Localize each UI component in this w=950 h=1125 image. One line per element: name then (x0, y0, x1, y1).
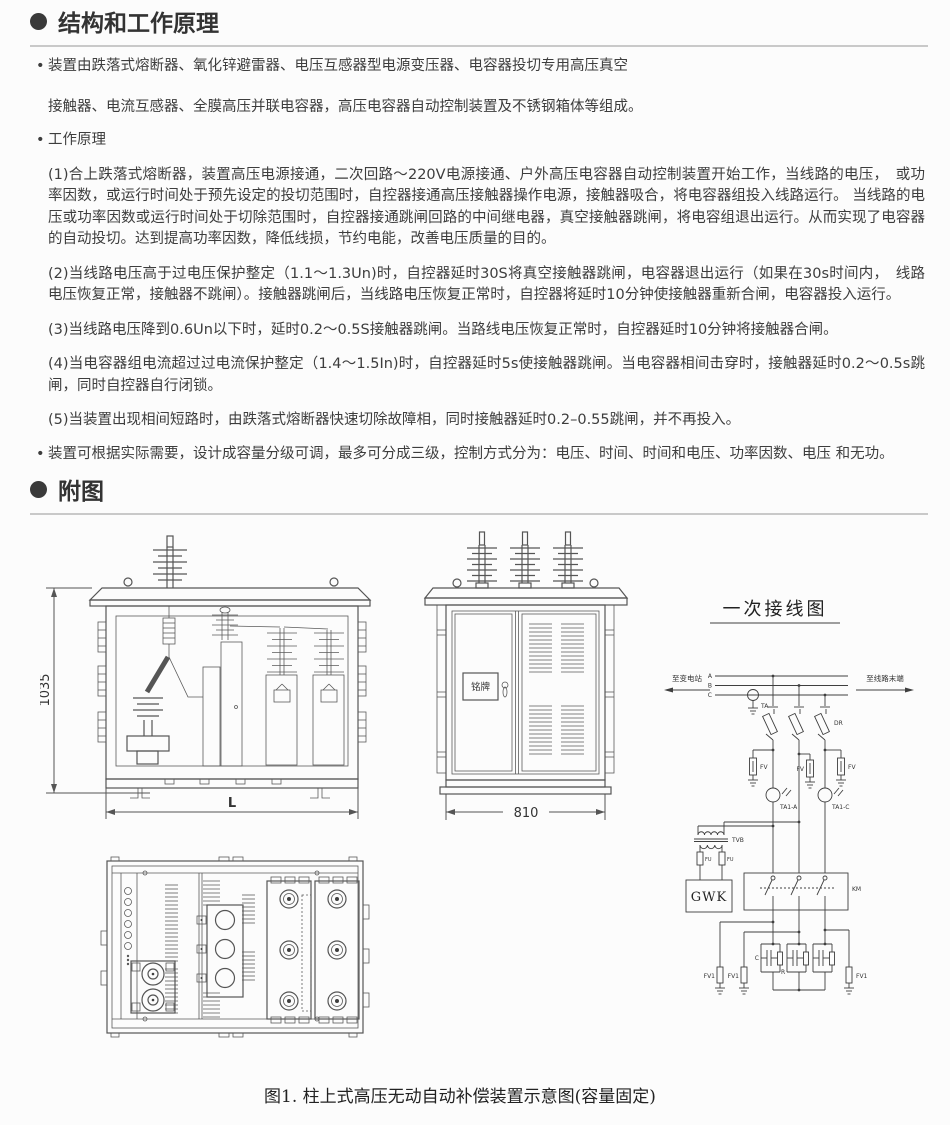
km-label: KM (852, 886, 861, 893)
figure-schematic: 一次接线图 A B C 至变电站 至线路末端 TA (640, 592, 950, 1010)
tvb-label: TVB (731, 837, 744, 844)
gwk-controller: GWK (686, 880, 732, 912)
section-title: 附图 (58, 472, 104, 506)
gwk-label: GWK (691, 890, 727, 905)
bullet-item-components: 装置由跌落式熔断器、氧化锌避雷器、电压互感器型电源变压器、电容器投切专用高压真空… (36, 46, 925, 128)
dim-height-label: 1035 (40, 673, 53, 706)
capacitor-unit (313, 630, 344, 765)
bullet-item-capacity: 装置可根据实际需要，设计成容量分级可调，最多可分成三级，控制方式分为：电压、时间… (36, 444, 925, 466)
paragraph-3: (3)当线路电压降到0.6Un以下时，延时0.2～0.5S接触器跳闸。当路线电压… (36, 320, 925, 342)
fu-label: FU (705, 857, 712, 863)
figure-front-view: 1035 (40, 530, 380, 822)
dropout-fuse-arm (147, 657, 168, 692)
lifting-lug-icon (453, 579, 461, 587)
figure-caption: 图1. 柱上式高压无动自动补偿装置示意图(容量固定) (0, 1082, 920, 1107)
paragraph-2: (2)当线路电压高于过电压保护整定（1.1～1.3Un)时，自控器延时30S将真… (36, 264, 925, 307)
bus-lines: A B C (708, 673, 848, 699)
fv-label: FV (796, 766, 804, 773)
fv1-label: FV1 (728, 973, 740, 980)
dim-width-label: L (228, 796, 236, 811)
lifting-lug-icon (124, 578, 132, 586)
figure-side-view: 铭牌 (400, 530, 660, 822)
page-root: 结构和工作原理 装置由跌落式熔断器、氧化锌避雷器、电压互感器型电源变压器、电容器… (0, 0, 950, 1125)
section-header-figures: 附图 (30, 472, 928, 515)
tvb-transformer: TVB FU FU (694, 821, 800, 880)
fv-arresters: FV FV FV (748, 749, 856, 788)
fuse-icon (163, 606, 175, 657)
lifting-lug-icon (330, 578, 338, 586)
fv1-label: FV1 (704, 973, 716, 980)
components-line2: 接触器、电流互感器、全膜高压并联电容器，高压电容器自动控制装置及不锈钢箱体等组成… (48, 87, 925, 128)
bullet-item-working-principle: 工作原理 (36, 130, 925, 152)
right-door (522, 614, 596, 771)
phase-b-label: B (708, 683, 712, 690)
internal-wire (284, 627, 328, 629)
figure-top-view (95, 853, 380, 1048)
door-handle-icon (502, 682, 508, 697)
center-bushing-icon (212, 607, 238, 640)
phase-a-label: A (708, 673, 713, 680)
fv-label: FV (760, 764, 768, 771)
dimension-height: 1035 (40, 588, 150, 793)
dr-label: DR (834, 720, 843, 727)
terminal-circles (125, 888, 132, 965)
bushing-icon (467, 532, 497, 588)
capacitor-unit (266, 628, 297, 765)
ta1c-label: TA1-C (831, 804, 849, 811)
fv-label: FV (848, 764, 856, 771)
r-label: R (781, 969, 785, 976)
section-title: 结构和工作原理 (58, 4, 219, 38)
cabinet-roof (90, 588, 370, 606)
dimension-width: 810 (446, 794, 605, 821)
dropout-fuses: DR (763, 675, 843, 740)
to-line-end-label: 至线路末端 (866, 673, 904, 683)
fv1-arresters: FV1 FV1 FV1 (704, 921, 868, 994)
schematic-title: 一次接线图 (723, 599, 828, 620)
paragraph-4: (4)当电容器组电流超过过电流保护整定（1.4～1.5In)时，自控器延时5s使… (36, 354, 925, 397)
km-contactor: KM (744, 873, 861, 910)
contactor-block (197, 905, 243, 997)
nameplate-label: 铭牌 (471, 681, 491, 693)
paragraph-1: (1)合上跌落式熔断器，装置高压电源接通，二次回路～220V电源接通、户外高压电… (36, 165, 925, 251)
capacitor-bank: C R (755, 943, 835, 992)
paragraph-5: (5)当装置出现相间短路时，由跌落式熔断器快速切除故障相，同时接触器延时0.2–… (36, 410, 925, 432)
section-header-structure: 结构和工作原理 (30, 4, 928, 47)
insulator-icon (127, 698, 169, 764)
ta-symbol: TA (748, 690, 770, 715)
ta-label: TA (760, 703, 769, 710)
bushing-icon (553, 532, 583, 588)
lifting-lug-icon (590, 579, 598, 587)
dim-width-label: 810 (514, 806, 539, 821)
ta1a-label: TA1-A (779, 804, 798, 811)
nameplate: 铭牌 (463, 673, 498, 700)
bushing-icon (153, 536, 187, 588)
dimension-width: L (106, 786, 358, 819)
ventilation-louvers (529, 624, 584, 754)
cabinet-roof (425, 588, 627, 605)
hinge-strips (98, 622, 366, 742)
current-transformers: TA1-A TA1-C (766, 788, 849, 873)
fv1-label: FV1 (856, 973, 868, 980)
bullet-dot-icon (30, 481, 47, 498)
internal-wire (169, 657, 203, 697)
structure-text: 装置由跌落式熔断器、氧化锌避雷器、电压互感器型电源变压器、电容器投切专用高压真空… (36, 42, 925, 465)
center-column (203, 642, 242, 766)
to-substation-label: 至变电站 (672, 673, 702, 683)
cabinet-base (440, 780, 611, 794)
to-line-end-arrow: 至线路末端 (856, 673, 914, 693)
fu-label: FU (727, 857, 734, 863)
capacitor-bank-top (267, 877, 359, 1023)
bushing-icon (510, 532, 540, 588)
components-line1: 装置由跌落式熔断器、氧化锌避雷器、电压互感器型电源变压器、电容器投切专用高压真空 (48, 46, 925, 87)
cabinet-body (106, 606, 358, 779)
bullet-dot-icon (30, 13, 47, 30)
c-label: C (755, 955, 759, 962)
phase-c-label: C (708, 692, 712, 699)
to-substation-arrow: 至变电站 (664, 673, 710, 693)
internal-wire (230, 626, 280, 627)
